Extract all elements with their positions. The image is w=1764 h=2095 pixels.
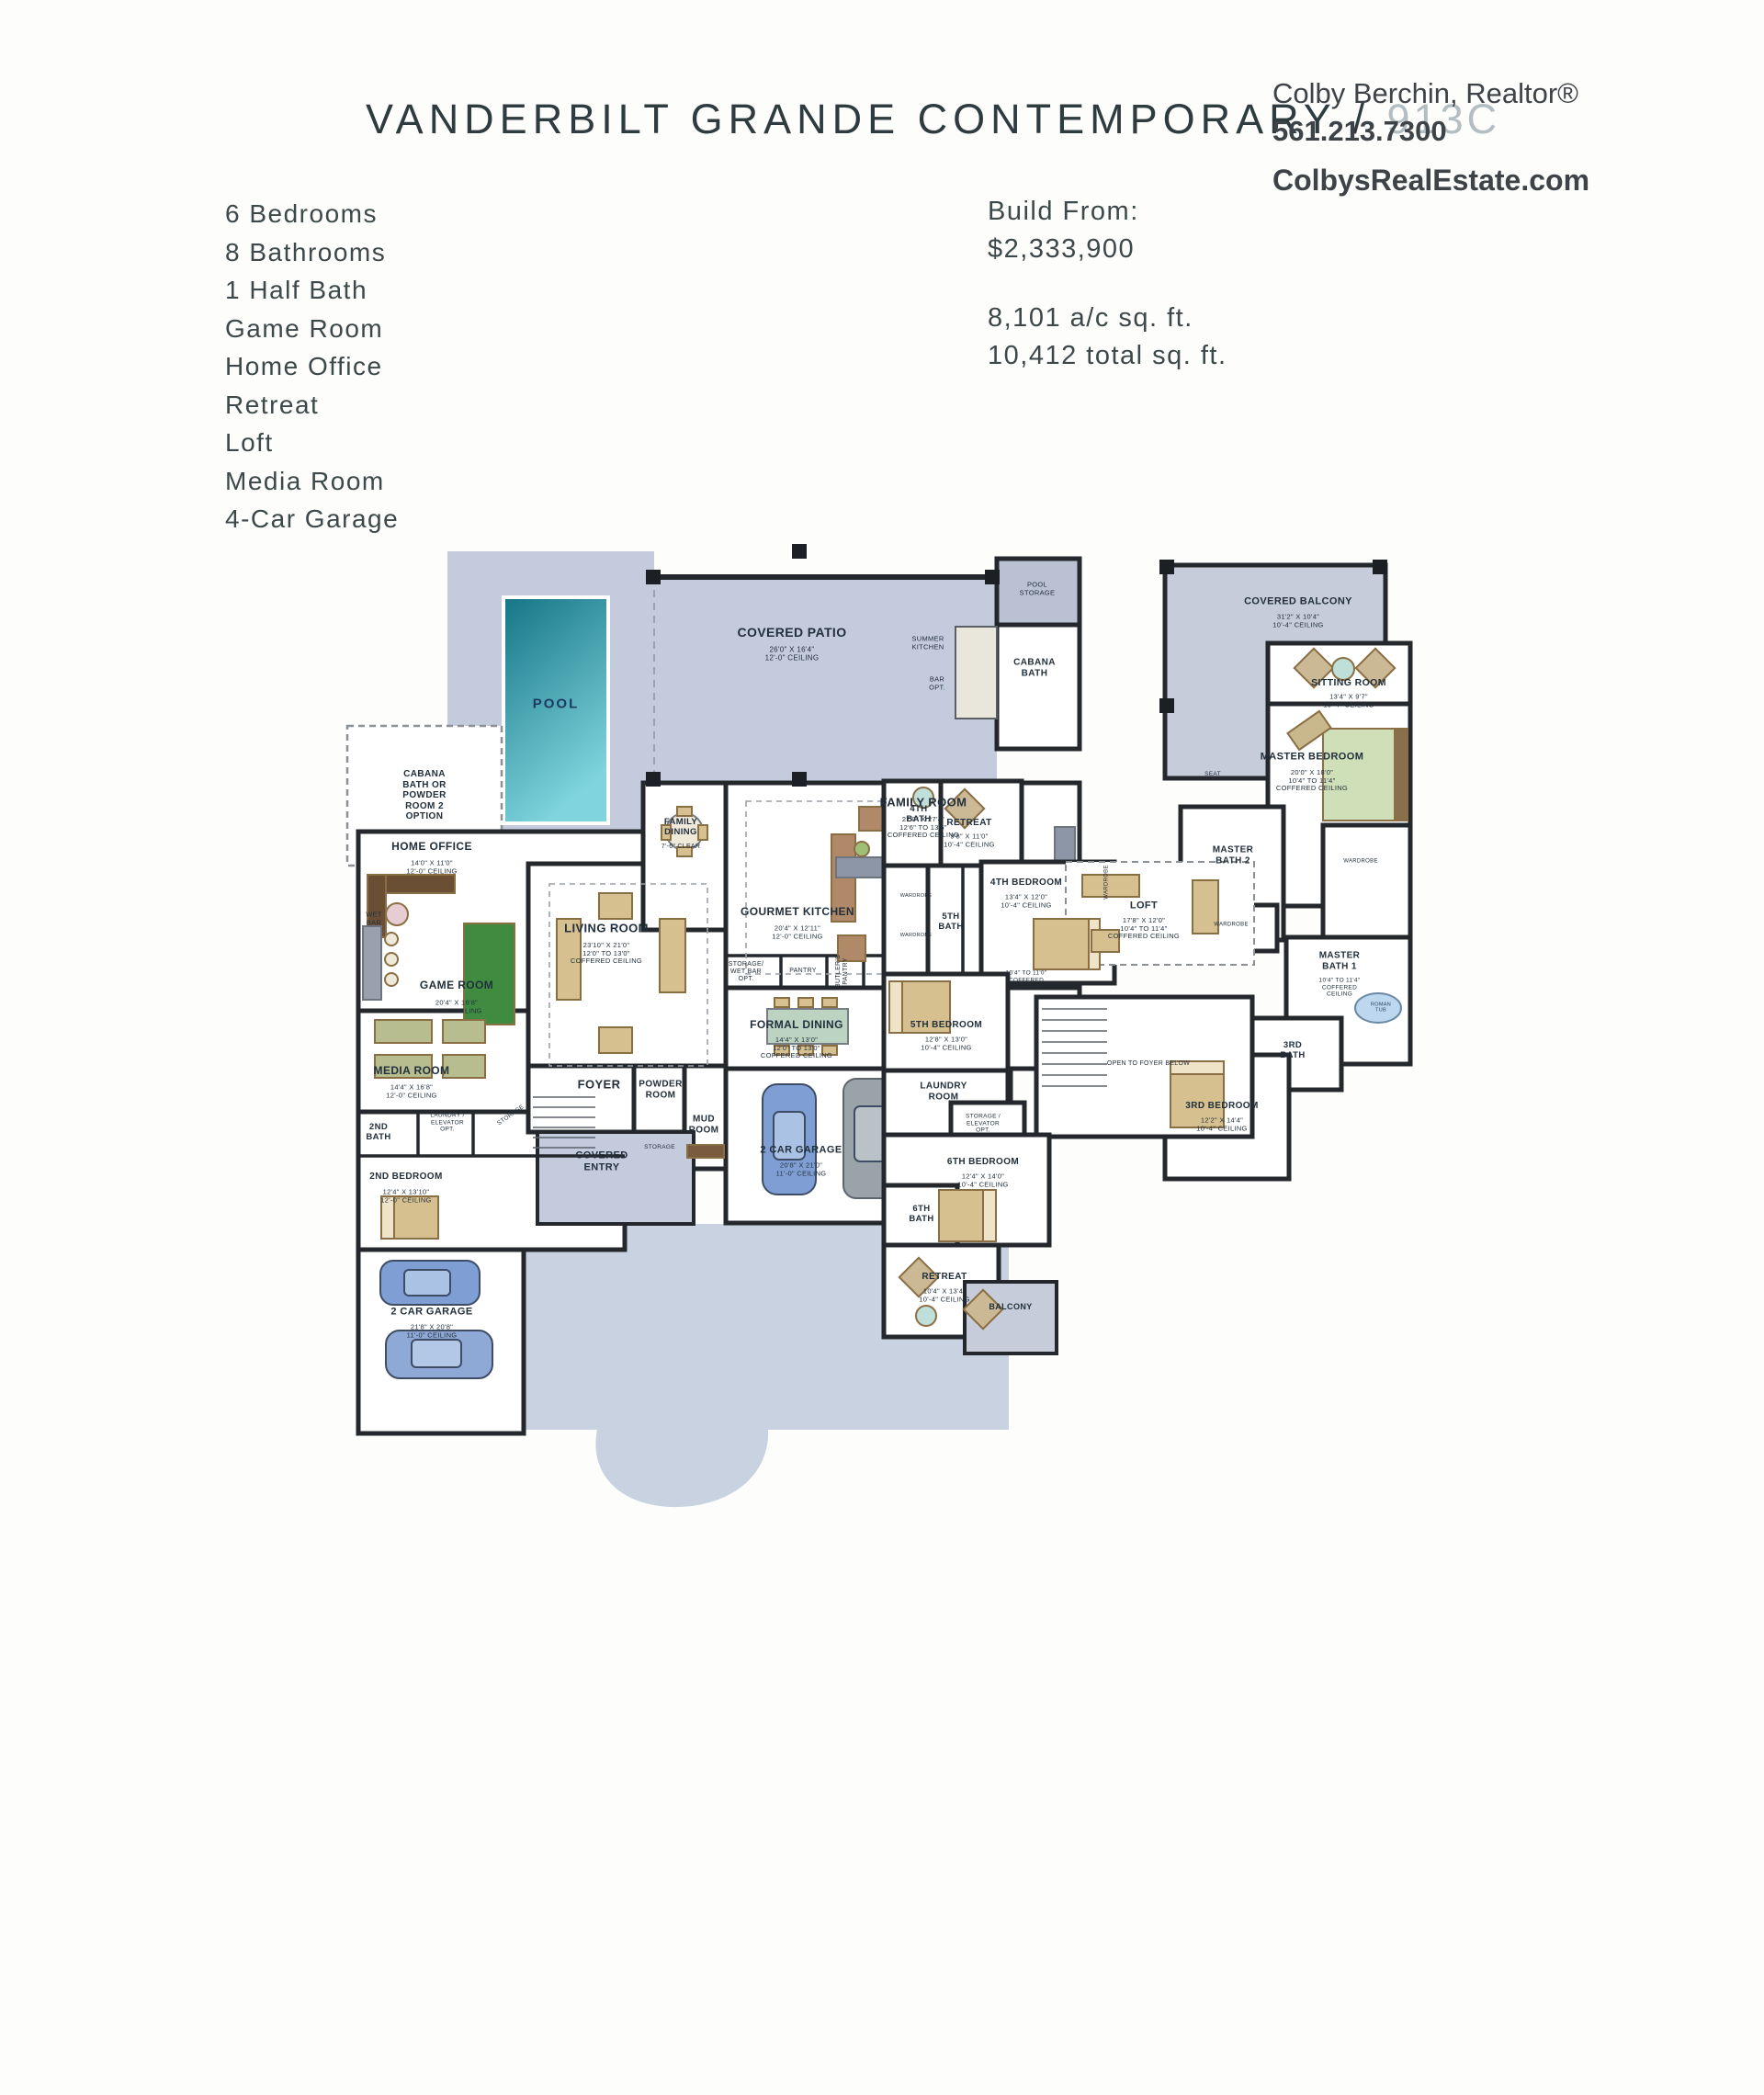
plan-label: 26'0" X 16'4" 12'-0" CEILING bbox=[765, 646, 820, 663]
plan-label: 20'8" X 21'0" 11'-0" CEILING bbox=[776, 1161, 827, 1177]
plan-label: OPEN TO FOYER BELOW bbox=[1107, 1060, 1190, 1068]
plan-label: BALCONY bbox=[989, 1302, 1032, 1311]
plan-label: FORMAL DINING bbox=[750, 1019, 843, 1032]
plan-label: 21'8" X 20'8" 11'-0" CEILING bbox=[407, 1323, 458, 1339]
plan-label: SEAT bbox=[1204, 771, 1221, 778]
plan-label: BUTLER'S PANTRY bbox=[835, 955, 850, 988]
plan-label: WARDROBE bbox=[900, 893, 933, 899]
plan-label: 7'-6" CLEAR bbox=[661, 844, 701, 851]
plan-label: RETREAT bbox=[946, 818, 991, 829]
plan-label: RETREAT bbox=[922, 1272, 967, 1283]
plan-label: ROMAN TUB bbox=[1371, 1002, 1391, 1014]
plan-label: MASTER BATH 2 bbox=[1213, 844, 1254, 866]
plan-label: LAUNDRY ROOM bbox=[920, 1081, 967, 1102]
plan-label: LIVING ROOM bbox=[564, 921, 649, 934]
plan-label: 17'8" X 12'0" 10'4" TO 11'4" COFFERED CE… bbox=[1108, 917, 1180, 941]
plan-label: FAMILY DINING bbox=[664, 817, 697, 837]
plan-label: 2 CAR GARAGE bbox=[390, 1307, 472, 1319]
plan-label: 20'4" X 16'8" 12'-0" CEILING bbox=[431, 999, 481, 1014]
plan-label: 23'10" X 21'0" 12'0" TO 13'0" COFFERED C… bbox=[571, 942, 642, 966]
plan-label: 20'4" X 12'11" 12'-0" CEILING bbox=[772, 924, 822, 940]
plan-label: WARDROBE bbox=[1104, 865, 1111, 900]
plan-label: STORAGE bbox=[496, 1104, 526, 1127]
plan-label: GOURMET KITCHEN bbox=[741, 906, 854, 919]
plan-label: 20'0" X 18'0" 10'4" TO 11'4" COFFERED CE… bbox=[1276, 769, 1348, 793]
plan-label: 12'4" X 13'10" 12'-0" CEILING bbox=[380, 1188, 431, 1204]
plan-label: POWDER ROOM bbox=[639, 1079, 682, 1100]
plan-label: MASTER BEDROOM bbox=[1261, 752, 1364, 764]
plan-label: PANTRY bbox=[789, 968, 817, 975]
plan-label: 6TH BATH bbox=[909, 1204, 933, 1224]
floorplan-labels: POOLCOVERED PATIO26'0" X 16'4" 12'-0" CE… bbox=[0, 0, 1764, 2095]
plan-label: LOFT bbox=[1130, 900, 1158, 912]
plan-label: 13'4" X 12'0" 10'-4" CEILING bbox=[1001, 893, 1051, 909]
plan-label: LAUNDRY / ELEVATOR OPT. bbox=[430, 1113, 464, 1134]
plan-label: WARDROBE bbox=[1343, 859, 1378, 866]
plan-label: 3RD BEDROOM bbox=[1185, 1101, 1258, 1112]
plan-label: COVERED BALCONY bbox=[1244, 596, 1352, 608]
plan-label: 12'4" X 14'0" 10'-4" CEILING bbox=[957, 1172, 1008, 1188]
plan-label: 5TH BATH bbox=[938, 912, 963, 932]
plan-label: 14'0" X 11'0" 12'-0" CEILING bbox=[406, 859, 457, 875]
plan-label: 4TH BATH bbox=[906, 804, 931, 824]
plan-label: POOL bbox=[533, 696, 580, 711]
plan-label: 12'8" X 13'0" 10'-4" CEILING bbox=[921, 1036, 971, 1051]
plan-label: SITTING ROOM bbox=[1311, 677, 1386, 688]
plan-label: GAME ROOM bbox=[420, 980, 493, 992]
plan-label: 2ND BATH bbox=[366, 1122, 390, 1142]
plan-label: 10'4" TO 11'0" COFFERED CEILING bbox=[1006, 970, 1047, 991]
plan-label: 6TH BEDROOM bbox=[947, 1157, 1019, 1168]
plan-label: SUMMER KITCHEN bbox=[911, 635, 944, 651]
plan-label: 3RD BATH bbox=[1280, 1040, 1305, 1060]
plan-label: POOL STORAGE bbox=[1020, 581, 1056, 596]
floorplan-flyer-page: VANDERBILT GRANDE CONTEMPORARY / 913C Co… bbox=[0, 0, 1764, 2095]
plan-label: 9'8" X 11'0" 10'-4" CEILING bbox=[944, 832, 994, 848]
plan-label: 4TH BEDROOM bbox=[990, 878, 1062, 889]
plan-label: WARDROBE bbox=[1214, 923, 1249, 929]
plan-label: 2 CAR GARAGE bbox=[760, 1145, 842, 1157]
plan-label: 5TH BEDROOM bbox=[910, 1020, 982, 1031]
plan-label: CABANA BATH OR POWDER ROOM 2 OPTION bbox=[402, 769, 447, 822]
plan-label: BAR OPT. bbox=[929, 675, 945, 691]
plan-label: MEDIA ROOM bbox=[374, 1065, 450, 1078]
plan-label: FOYER bbox=[578, 1077, 621, 1091]
plan-label: MUD ROOM bbox=[689, 1114, 719, 1135]
plan-label: COVERED PATIO bbox=[737, 625, 846, 640]
plan-label: 13'4" X 9'7" 10'-4" CEILING bbox=[1323, 693, 1374, 708]
plan-label: STORAGE / ELEVATOR OPT. bbox=[966, 1114, 1001, 1135]
plan-label: HOME OFFICE bbox=[391, 841, 472, 854]
plan-label: 10'4" X 13'4" 10'-4" CEILING bbox=[919, 1287, 969, 1303]
plan-label: CABANA BATH bbox=[1013, 657, 1056, 678]
plan-label: 2ND BEDROOM bbox=[369, 1172, 442, 1183]
plan-label: COVERED ENTRY bbox=[575, 1149, 628, 1173]
plan-label: 14'4" X 13'0" 12'0" TO 13'0" COFFERED CE… bbox=[761, 1036, 832, 1060]
plan-label: WET BAR bbox=[366, 911, 382, 926]
plan-label: 12'2" X 14'4" 10'-4" CEILING bbox=[1196, 1116, 1247, 1132]
plan-label: 14'4" X 16'8" 12'-0" CEILING bbox=[386, 1083, 436, 1099]
plan-label: WARDROBE bbox=[900, 933, 933, 938]
plan-label: STORAGE bbox=[644, 1144, 675, 1151]
plan-label: MASTER BATH 1 bbox=[1319, 950, 1361, 971]
plan-label: 31'2" X 10'4" 10'-4" CEILING bbox=[1272, 613, 1323, 628]
plan-label: STORAGE/ WET BAR OPT. bbox=[729, 961, 763, 983]
plan-label: 10'4" TO 11'4" COFFERED CEILING bbox=[1319, 978, 1361, 999]
